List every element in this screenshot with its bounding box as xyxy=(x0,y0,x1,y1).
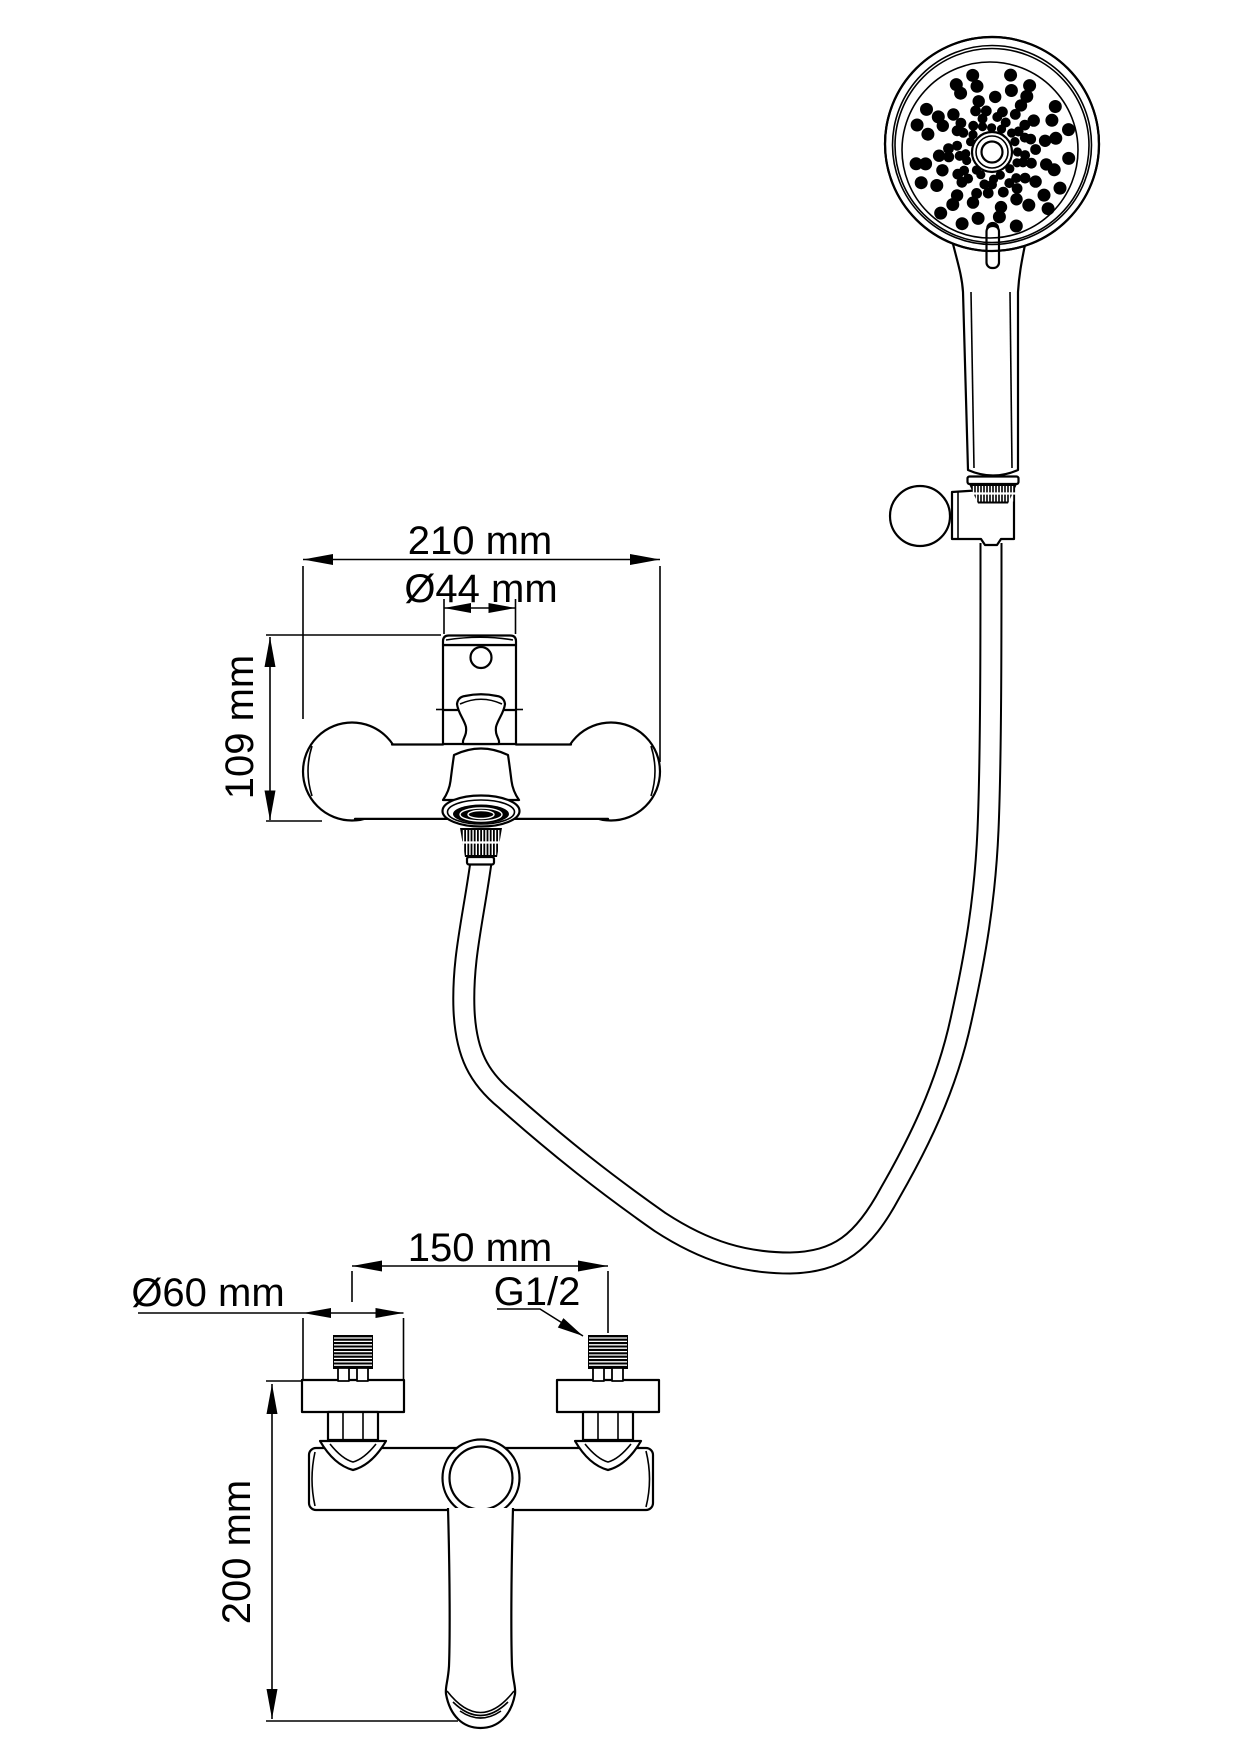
dimension-label: 109 mm xyxy=(218,655,262,800)
nozzle-dot xyxy=(968,121,978,131)
dimension-label: G1/2 xyxy=(494,1270,581,1314)
nozzle-dot xyxy=(930,179,943,192)
nozzle-dot xyxy=(920,103,933,116)
drawing-page: 210 mm Ø44 mm 109 mm xyxy=(0,0,1241,1754)
nozzle-dot xyxy=(997,107,1008,118)
arrowhead-down xyxy=(265,791,276,821)
nozzle-dot xyxy=(1004,69,1017,82)
spout-side-view xyxy=(446,1508,515,1728)
arrowhead-right xyxy=(578,1261,608,1272)
arrowhead-right xyxy=(630,554,660,565)
nozzle-dot xyxy=(921,128,934,141)
diverter-tab xyxy=(987,226,1000,268)
nozzle-dot xyxy=(1030,144,1041,155)
nozzle-dot xyxy=(1022,199,1035,212)
wall-mount-knob xyxy=(890,486,950,546)
nozzle-dot xyxy=(1026,158,1037,169)
handle-ring-inner xyxy=(450,1447,513,1510)
nozzle-dot xyxy=(967,196,979,208)
nozzle-dot xyxy=(955,151,965,161)
nozzle-dot xyxy=(1010,193,1022,205)
nozzle-dot xyxy=(1062,152,1075,165)
nozzle-dot xyxy=(956,217,969,230)
nozzle-dot xyxy=(943,143,954,154)
escutcheon-right xyxy=(557,1380,659,1412)
nozzle-dot xyxy=(950,78,963,91)
pipe-neck-left-a xyxy=(338,1368,349,1381)
hex-nut-left xyxy=(328,1412,378,1440)
tub-spout-dome xyxy=(443,749,519,801)
dimension-cartridge-diameter: Ø44 mm xyxy=(404,567,557,634)
pipe-neck-right-a xyxy=(593,1368,604,1381)
nozzle-dot xyxy=(936,164,948,176)
nozzle-dot xyxy=(966,69,979,82)
nozzle-dot xyxy=(952,169,963,180)
nozzle-dot xyxy=(932,110,945,123)
nozzle-dot xyxy=(1025,134,1036,145)
dimension-label: 210 mm xyxy=(408,519,553,563)
arrowhead-left xyxy=(352,1261,382,1272)
nozzle-dot xyxy=(993,210,1006,223)
dimension-label: 200 mm xyxy=(215,1480,259,1625)
nozzle-dot xyxy=(1029,175,1041,187)
arrowhead-down xyxy=(267,1689,278,1719)
pipe-neck-right-b xyxy=(612,1368,623,1381)
dimension-label: Ø44 mm xyxy=(404,567,557,611)
cartridge-button xyxy=(471,647,492,668)
nozzle-dot xyxy=(1062,123,1075,136)
arrowhead-up xyxy=(267,1384,278,1414)
arrowhead-right xyxy=(376,1308,404,1318)
escutcheon-left xyxy=(302,1380,404,1412)
dimension-label: 150 mm xyxy=(408,1226,553,1270)
nozzle-dot xyxy=(915,176,928,189)
hand-shower xyxy=(885,37,1099,546)
pipe-neck-left-b xyxy=(357,1368,368,1381)
nozzle-dot xyxy=(968,130,977,139)
nozzle-dot xyxy=(989,91,1001,103)
nozzle-dot xyxy=(933,150,945,162)
nozzle-dot xyxy=(1039,135,1051,147)
technical-drawing-canvas: 210 mm Ø44 mm 109 mm xyxy=(0,0,1241,1754)
nozzle-dot xyxy=(947,108,959,120)
nozzle-dot xyxy=(934,207,947,220)
mixer-side-view xyxy=(302,1335,659,1728)
nozzle-dot xyxy=(1012,183,1023,194)
nozzle-dot xyxy=(998,187,1009,198)
nozzle-dot xyxy=(1001,118,1011,128)
nozzle-dot xyxy=(983,188,994,199)
nozzle-dot xyxy=(1049,132,1062,145)
handle-end-band xyxy=(968,477,1019,485)
dimension-thread-size: G1/2 xyxy=(494,1270,583,1336)
arrowhead-up xyxy=(265,637,276,667)
shower-hose xyxy=(464,543,991,1263)
nozzle-dot xyxy=(973,95,985,107)
nozzle-dot xyxy=(972,212,985,225)
shower-center-hole xyxy=(982,142,1003,163)
nozzle-dot xyxy=(911,119,924,132)
arrowhead-left xyxy=(303,1308,331,1318)
hose-core xyxy=(464,543,991,1263)
nozzle-dot xyxy=(1010,220,1023,233)
nozzle-dot xyxy=(910,157,923,170)
nozzle-dot xyxy=(946,198,959,211)
leader-arrowhead xyxy=(558,1318,583,1336)
nozzle-dot xyxy=(1045,114,1058,127)
nozzle-dot xyxy=(1028,114,1040,126)
hex-nut-right xyxy=(583,1412,633,1440)
nozzle-dot xyxy=(1020,173,1031,184)
nozzle-dot xyxy=(1054,182,1067,195)
nozzle-dot xyxy=(981,106,992,117)
nozzle-dot xyxy=(1005,84,1018,97)
spout-hose-connector xyxy=(467,857,494,865)
nozzle-dot xyxy=(1042,202,1055,215)
mixer-front-view xyxy=(303,636,660,865)
arrowhead-left xyxy=(303,554,333,565)
nozzle-dot xyxy=(1023,79,1036,92)
nozzle-dot xyxy=(1038,189,1051,202)
nozzle-dot xyxy=(1049,100,1062,113)
shower-handle xyxy=(952,240,1026,476)
dimension-label: Ø60 mm xyxy=(131,1271,284,1315)
nozzle-dot xyxy=(1048,163,1061,176)
